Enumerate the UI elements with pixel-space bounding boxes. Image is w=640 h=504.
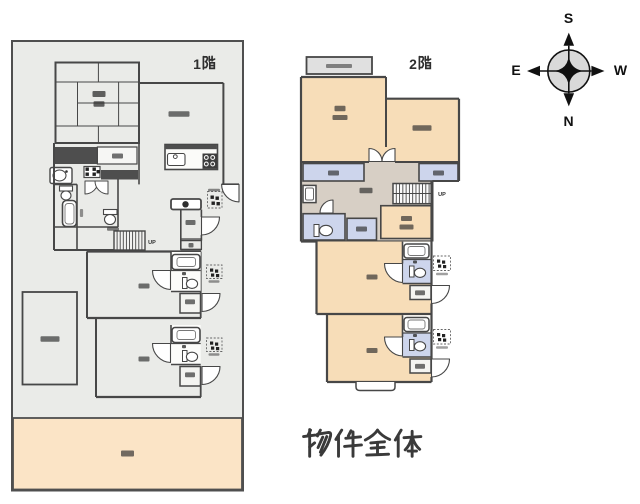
svg-text:S: S	[564, 10, 573, 26]
svg-text:W: W	[614, 62, 628, 78]
svg-text:UP: UP	[148, 240, 156, 246]
svg-text:UP: UP	[438, 192, 446, 198]
svg-text:1: 1	[193, 56, 201, 72]
svg-text:2: 2	[409, 56, 417, 72]
svg-text:E: E	[511, 62, 520, 78]
svg-text:N: N	[563, 113, 573, 129]
